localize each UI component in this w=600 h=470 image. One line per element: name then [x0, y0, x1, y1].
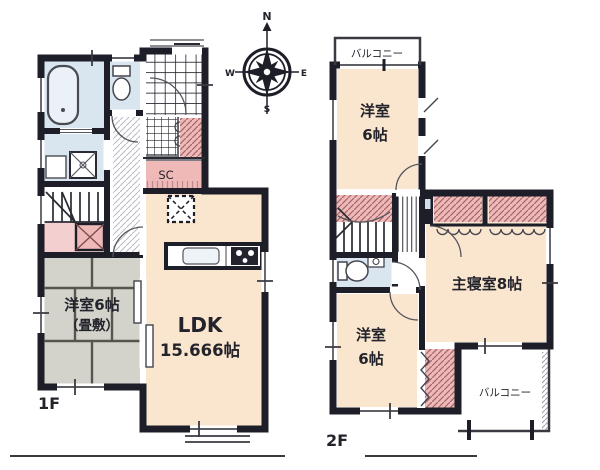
- refrigerator-space: [168, 196, 194, 222]
- balcony-north-label: バルコニー: [351, 48, 403, 60]
- bathtub: [48, 66, 78, 124]
- room-north-label-line1: 洋室: [360, 102, 390, 120]
- room-ldk: [146, 194, 262, 426]
- kitchen-sink: [183, 248, 219, 264]
- shoe-shelf-hatch: [180, 118, 202, 158]
- toilet-tank-1f: [113, 66, 130, 76]
- floor-plan-page: LDK 15.666帖 洋室6帖 （畳敷） SC 1F N W E S: [0, 0, 600, 470]
- ldk-label-line1: LDK: [178, 313, 224, 337]
- tatami-room-label-line2: （畳敷）: [65, 317, 119, 334]
- sliding-door-panel: [146, 325, 153, 367]
- closet-master-west-hatch: [434, 196, 482, 222]
- bathtub-drain: [61, 108, 65, 112]
- compass-s-label: S: [264, 105, 270, 115]
- kitchen-counter: [164, 242, 264, 270]
- compass-center: [263, 68, 271, 76]
- room-south-label-line1: 洋室: [356, 326, 386, 344]
- ldk-label-line2: 15.666帖: [160, 340, 241, 360]
- tatami-room-label-line1: 洋室6帖: [64, 296, 119, 314]
- floor-plan-drawing: LDK 15.666帖 洋室6帖 （畳敷） SC 1F N W E S: [0, 0, 600, 470]
- wash-cabinet: [46, 156, 66, 178]
- balcony-south-label: バルコニー: [479, 387, 531, 399]
- floor2-label: 2F: [326, 431, 348, 450]
- closet-stair-top-hatch: [336, 195, 392, 222]
- sliding-door-panel: [134, 281, 141, 323]
- floor1-label: 1F: [38, 394, 60, 413]
- master-bedroom-label: 主寝室8帖: [452, 275, 522, 293]
- toilet-bowl-1f: [113, 78, 130, 100]
- compass-e-label: E: [301, 69, 307, 79]
- genkan-tiles: [146, 117, 177, 156]
- room-south-label-line2: 6帖: [358, 350, 383, 368]
- compass-n-label: N: [262, 10, 271, 23]
- hallway-stripes-2f: [397, 196, 419, 252]
- balcony-drain-hatch: [542, 352, 548, 430]
- entry-porch-tiles: [146, 54, 202, 115]
- closet-master-east-hatch: [489, 196, 547, 222]
- compass-w-label: W: [225, 69, 235, 79]
- toilet-bowl-2f: [346, 261, 368, 281]
- room-north-label-line2: 6帖: [362, 126, 387, 144]
- sc-label: SC: [158, 168, 173, 182]
